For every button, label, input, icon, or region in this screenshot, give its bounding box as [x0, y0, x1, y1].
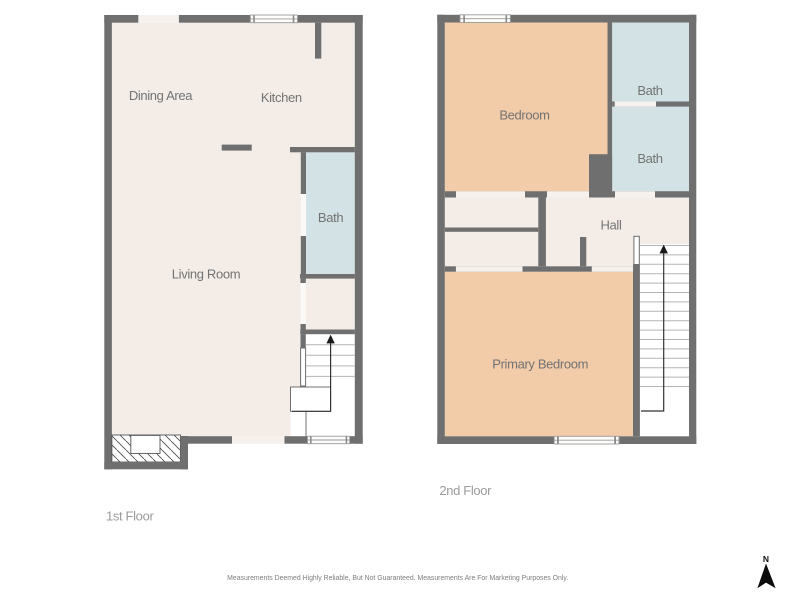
svg-text:Kitchen: Kitchen [261, 90, 302, 105]
svg-text:Dining Area: Dining Area [129, 88, 193, 103]
svg-text:2nd Floor: 2nd Floor [439, 483, 492, 498]
svg-text:N: N [763, 554, 769, 564]
svg-text:Measurements Deemed Highly Rel: Measurements Deemed Highly Reliable, But… [227, 575, 568, 582]
svg-text:Living Room: Living Room [172, 267, 240, 282]
svg-text:Hall: Hall [601, 217, 622, 232]
svg-text:Primary Bedroom: Primary Bedroom [492, 357, 588, 372]
svg-text:Bath: Bath [637, 151, 662, 166]
svg-text:1st Floor: 1st Floor [106, 508, 154, 523]
svg-text:Bath: Bath [637, 83, 662, 98]
svg-text:Bedroom: Bedroom [499, 108, 549, 123]
svg-text:Bath: Bath [318, 210, 343, 225]
